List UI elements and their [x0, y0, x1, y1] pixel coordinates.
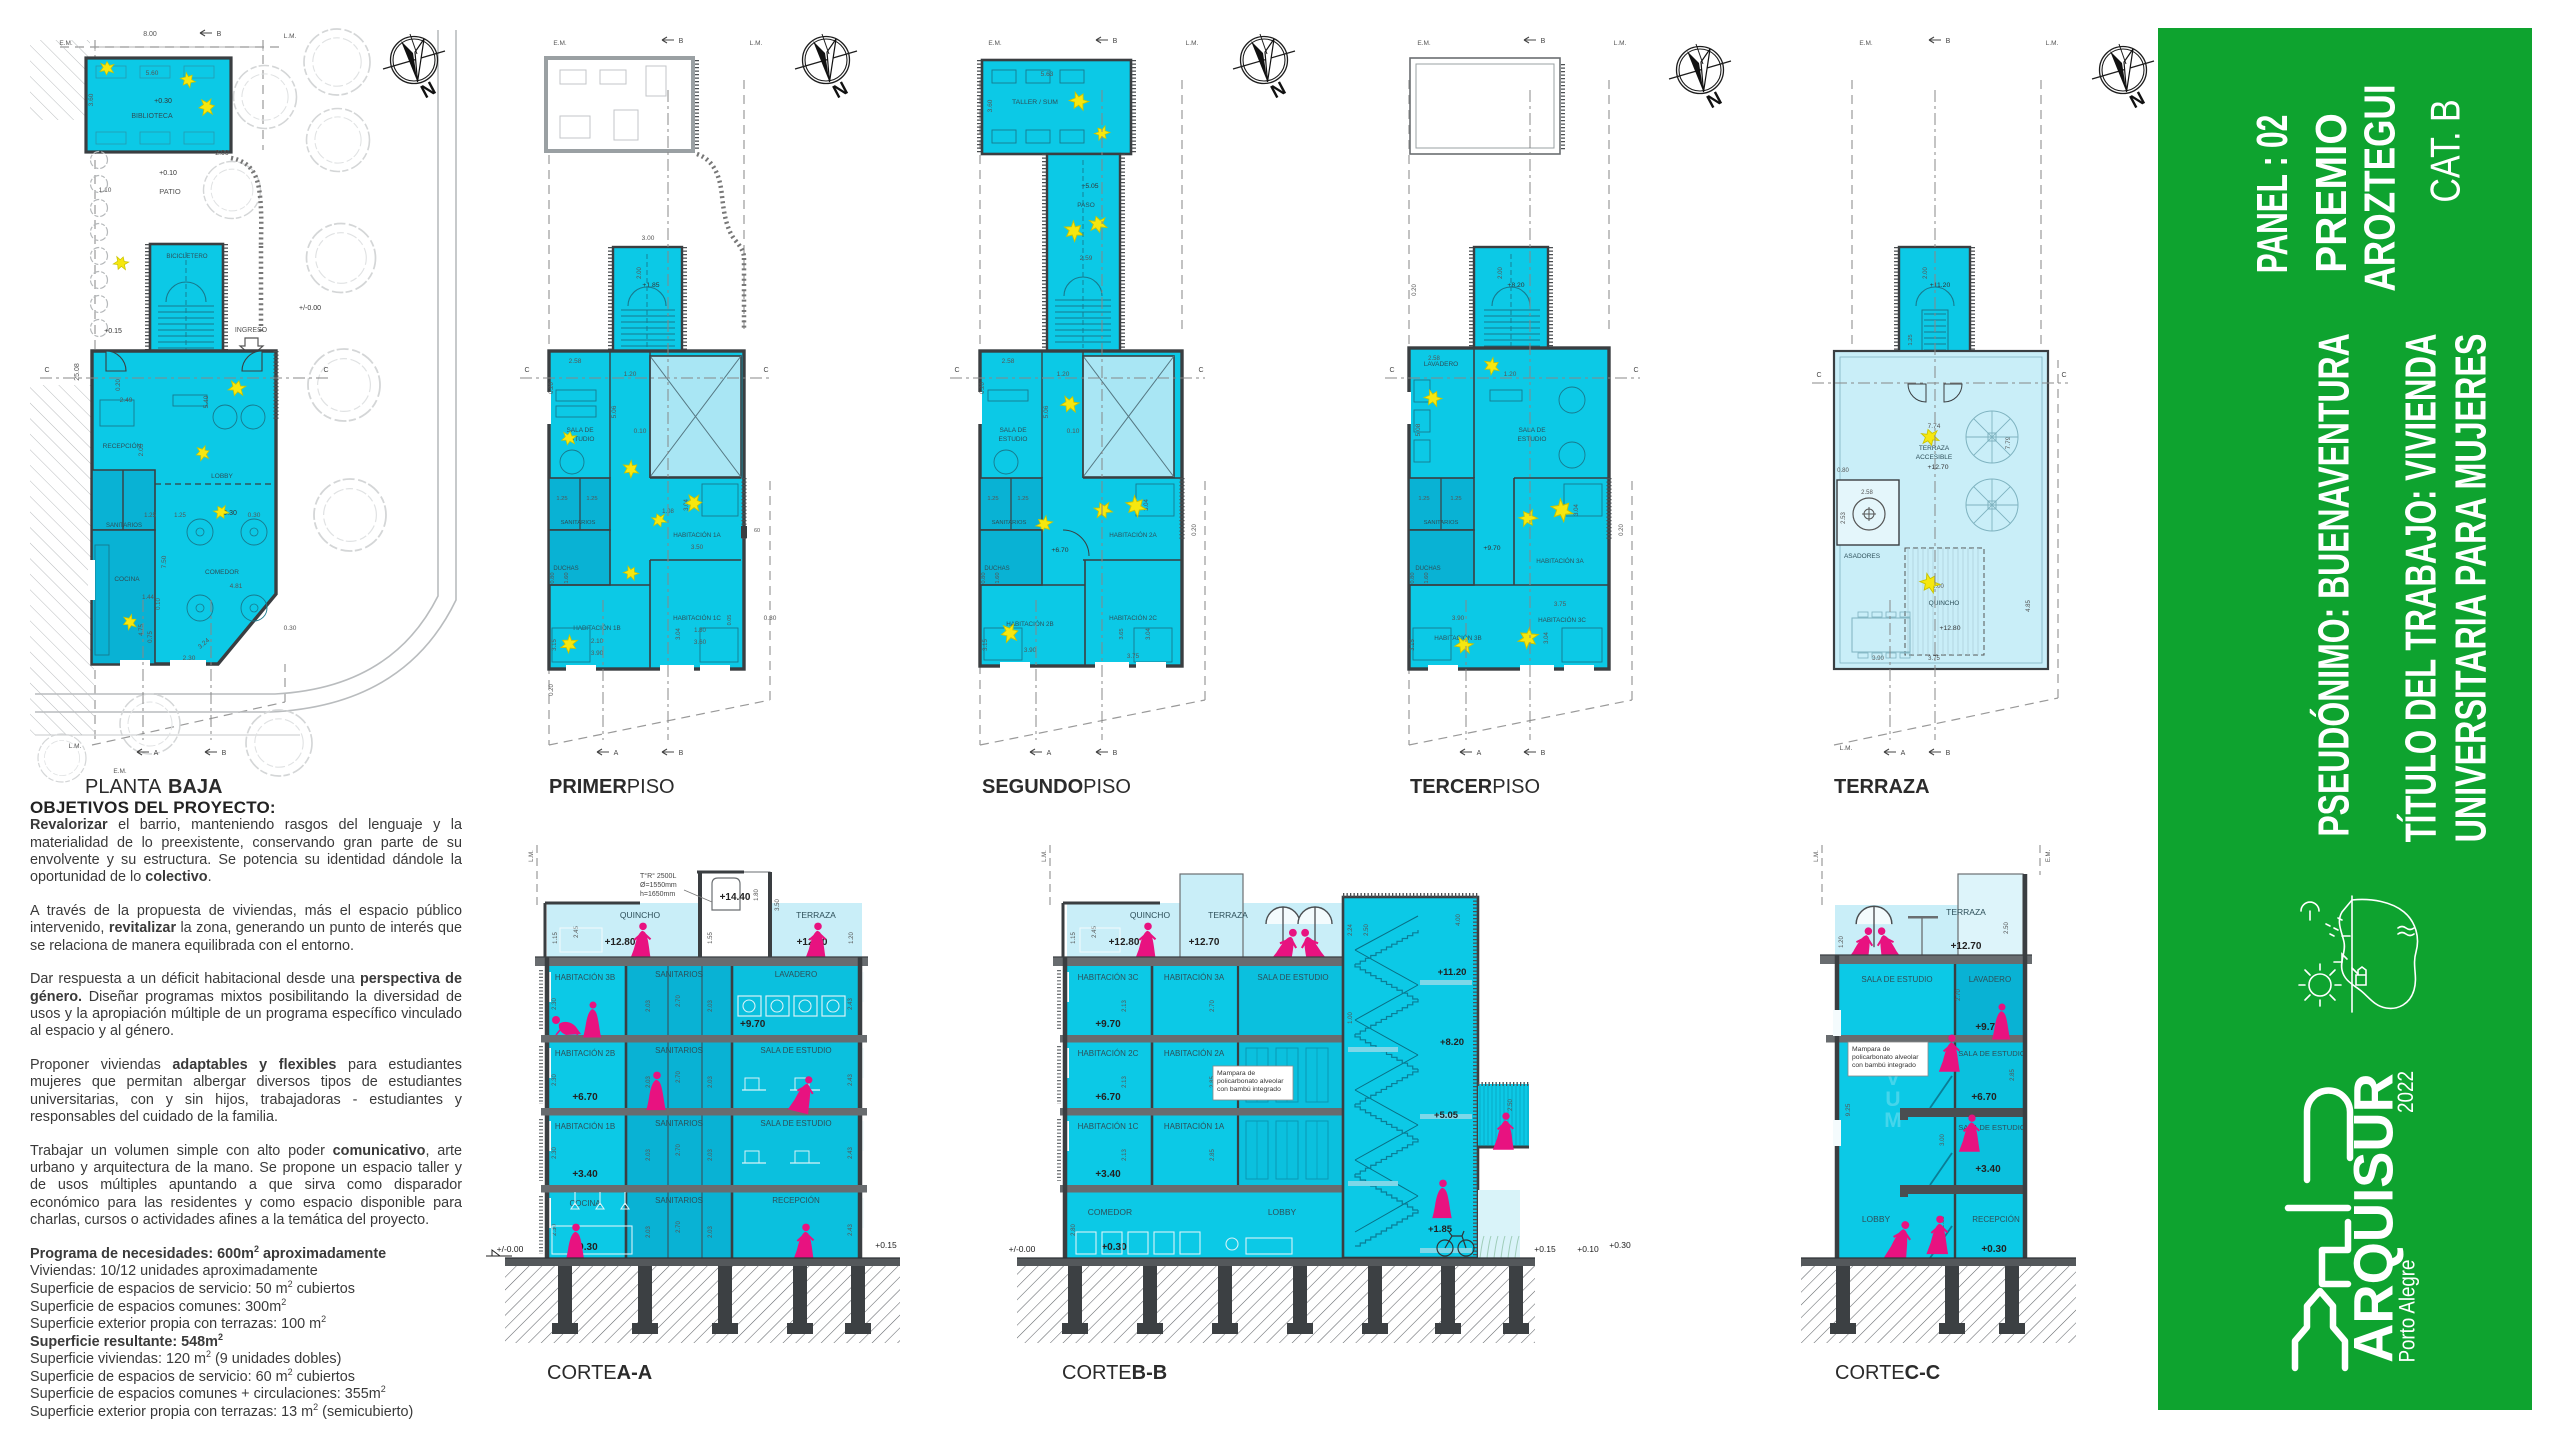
svg-text:+/-0.00: +/-0.00 [299, 305, 321, 312]
svg-text:A: A [1901, 750, 1906, 757]
svg-text:+3.40: +3.40 [1095, 1169, 1121, 1180]
svg-text:+12.70: +12.70 [1189, 937, 1220, 948]
svg-text:3.15: 3.15 [1410, 639, 1416, 651]
svg-text:2.03: 2.03 [708, 1226, 714, 1238]
svg-text:2022: 2022 [2394, 1071, 2419, 1113]
svg-text:A: A [614, 750, 619, 757]
svg-text:C: C [954, 367, 959, 374]
svg-text:TÍTULO DEL TRABAJO: VIVIENDA: TÍTULO DEL TRABAJO: VIVIENDA [2395, 334, 2446, 843]
svg-text:HABITACIÓN 1B: HABITACIÓN 1B [573, 623, 620, 632]
svg-text:4.00: 4.00 [1456, 914, 1462, 926]
svg-text:T°R° 2500L: T°R° 2500L [640, 872, 676, 880]
svg-text:B: B [1113, 38, 1118, 45]
svg-text:60: 60 [754, 528, 760, 534]
svg-text:+12.80: +12.80 [605, 937, 636, 948]
svg-text:h=1650mm: h=1650mm [640, 891, 675, 898]
svg-text:2.43: 2.43 [848, 998, 854, 1010]
svg-text:2.70: 2.70 [676, 995, 682, 1007]
svg-text:2.70: 2.70 [676, 1221, 682, 1233]
svg-text:1.25: 1.25 [556, 496, 567, 502]
svg-text:0.80: 0.80 [550, 572, 556, 583]
svg-text:SANITARIOS: SANITARIOS [561, 520, 596, 526]
svg-text:3.60: 3.60 [88, 93, 95, 106]
svg-text:C: C [1633, 367, 1638, 374]
svg-text:0.20: 0.20 [1412, 284, 1418, 296]
svg-text:HABITACIÓN 2A: HABITACIÓN 2A [1109, 530, 1157, 539]
svg-text:1.44: 1.44 [142, 595, 154, 601]
svg-text:3.15: 3.15 [552, 639, 558, 651]
svg-text:C: C [323, 367, 328, 374]
svg-text:C: C [763, 367, 768, 374]
svg-text:QUINCHO: QUINCHO [1929, 600, 1960, 607]
svg-text:2.03: 2.03 [646, 1000, 652, 1012]
svg-text:0.05: 0.05 [727, 615, 733, 626]
svg-text:1.20: 1.20 [849, 932, 855, 944]
svg-text:+0.10: +0.10 [1577, 1244, 1599, 1254]
svg-text:+0.15: +0.15 [1534, 1244, 1556, 1254]
svg-text:4.81: 4.81 [230, 583, 243, 590]
svg-text:3.75: 3.75 [1127, 653, 1140, 660]
svg-text:TERRAZA: TERRAZA [1946, 907, 1986, 917]
svg-text:+3.40: +3.40 [572, 1169, 598, 1180]
svg-text:con bambú integrado: con bambú integrado [1217, 1086, 1281, 1093]
svg-text:+9.70: +9.70 [1483, 545, 1500, 552]
svg-text:3.75: 3.75 [1554, 601, 1567, 608]
svg-text:L.M.: L.M. [529, 850, 535, 862]
svg-text:QUINCHO: QUINCHO [620, 910, 661, 920]
svg-text:2.00: 2.00 [215, 150, 229, 157]
svg-text:1.25: 1.25 [1908, 334, 1914, 345]
svg-text:L.M.: L.M. [1814, 850, 1820, 862]
svg-text:SALA DE ESTUDIO: SALA DE ESTUDIO [1861, 975, 1932, 984]
svg-text:2.24: 2.24 [1348, 924, 1354, 936]
svg-text:3.04: 3.04 [1146, 628, 1152, 640]
svg-text:2.58: 2.58 [569, 358, 582, 365]
svg-text:1.55: 1.55 [708, 932, 714, 944]
svg-text:2.43: 2.43 [848, 1074, 854, 1086]
svg-text:BICICLETERO: BICICLETERO [166, 253, 207, 260]
svg-text:policarbonato alveolar: policarbonato alveolar [1217, 1078, 1284, 1085]
svg-text:COCINA: COCINA [114, 576, 140, 583]
svg-text:1.25: 1.25 [144, 513, 156, 519]
svg-text:+0.15: +0.15 [104, 328, 122, 335]
svg-text:+0.30: +0.30 [1101, 1242, 1127, 1253]
svg-text:+6.70: +6.70 [1051, 547, 1068, 554]
svg-text:0.20: 0.20 [549, 684, 555, 696]
svg-text:2.10: 2.10 [591, 638, 604, 645]
svg-text:Ø=1550mm: Ø=1550mm [640, 882, 677, 889]
svg-text:2.70: 2.70 [1210, 1000, 1216, 1012]
svg-text:0.20: 0.20 [549, 382, 555, 394]
svg-text:HABITACIÓN 3A: HABITACIÓN 3A [1536, 556, 1584, 565]
svg-text:2.03: 2.03 [646, 1226, 652, 1238]
svg-text:+0.15: +0.15 [875, 1240, 897, 1250]
svg-text:0.80: 0.80 [1837, 468, 1849, 474]
svg-text:B: B [679, 38, 684, 45]
svg-text:1.25: 1.25 [1418, 496, 1429, 502]
svg-text:3.00: 3.00 [642, 235, 655, 242]
svg-text:ESTUDIO: ESTUDIO [999, 436, 1028, 443]
svg-text:4.75: 4.75 [139, 624, 145, 636]
svg-text:2.53: 2.53 [1841, 512, 1847, 524]
svg-text:3.90: 3.90 [591, 650, 604, 657]
svg-text:B: B [1541, 750, 1546, 757]
svg-text:E.M.: E.M. [113, 768, 127, 775]
svg-text:con bambú integrado: con bambú integrado [1852, 1062, 1916, 1069]
svg-text:E.M.: E.M. [59, 40, 73, 47]
svg-text:DUCHAS: DUCHAS [984, 566, 1009, 572]
svg-text:2.49: 2.49 [120, 397, 133, 404]
svg-text:HABITACIÓN 1C: HABITACIÓN 1C [1078, 1122, 1139, 1131]
svg-text:U: U [1885, 1088, 1900, 1111]
svg-text:TERRAZA: TERRAZA [1919, 445, 1950, 452]
svg-text:L.M.: L.M. [2046, 40, 2059, 47]
svg-text:Mampara de: Mampara de [1217, 1070, 1255, 1077]
svg-text:2.03: 2.03 [708, 1149, 714, 1161]
svg-text:HABITACIÓN 2A: HABITACIÓN 2A [1164, 1049, 1225, 1058]
svg-text:0.10: 0.10 [1067, 428, 1080, 435]
svg-text:5.40: 5.40 [203, 395, 210, 408]
svg-text:+3.40: +3.40 [1975, 1164, 2001, 1175]
svg-text:SALA DE: SALA DE [1518, 427, 1546, 434]
svg-text:B: B [679, 750, 684, 757]
svg-text:C: C [1389, 367, 1394, 374]
svg-text:+14.40: +14.40 [720, 892, 751, 903]
svg-text:+11.20: +11.20 [1438, 967, 1467, 978]
svg-text:E.M.: E.M. [1859, 40, 1873, 47]
svg-text:2.59: 2.59 [1080, 255, 1093, 262]
svg-text:3.50: 3.50 [775, 899, 781, 911]
svg-text:+6.70: +6.70 [1095, 1092, 1121, 1103]
svg-text:TERCERPISO: TERCERPISO [1410, 776, 1540, 798]
svg-text:BIBLIOTECA: BIBLIOTECA [131, 113, 173, 120]
svg-text:CORTEB-B: CORTEB-B [1062, 1362, 1167, 1384]
svg-text:SALA DE: SALA DE [999, 427, 1027, 434]
svg-text:+1.85: +1.85 [1428, 1224, 1453, 1235]
svg-text:CORTEA-A: CORTEA-A [547, 1362, 652, 1384]
svg-text:1.15: 1.15 [553, 932, 559, 944]
svg-text:0.75: 0.75 [148, 631, 154, 643]
svg-text:2.30: 2.30 [552, 1074, 558, 1086]
svg-text:2.00: 2.00 [1498, 267, 1504, 279]
svg-text:1.20: 1.20 [624, 371, 637, 378]
svg-text:SANITARIOS: SANITARIOS [655, 1046, 703, 1055]
svg-text:LAVADERO: LAVADERO [1424, 361, 1458, 368]
svg-text:+8.20: +8.20 [1440, 1037, 1464, 1048]
svg-text:1.60: 1.60 [1424, 572, 1430, 583]
svg-text:2.70: 2.70 [1956, 989, 1962, 1001]
svg-text:ARQUISUR: ARQUISUR [2342, 1073, 2405, 1363]
svg-text:3.75: 3.75 [1928, 656, 1940, 662]
svg-text:3.04: 3.04 [1574, 504, 1580, 516]
svg-text:+5.05: +5.05 [1434, 1110, 1459, 1121]
svg-text:L.M.: L.M. [284, 33, 297, 40]
svg-text:M: M [1884, 1109, 1902, 1132]
svg-text:HABITACIÓN 1C: HABITACIÓN 1C [673, 613, 721, 622]
svg-text:2.03: 2.03 [138, 443, 145, 456]
svg-text:C: C [1198, 367, 1203, 374]
svg-text:B: B [1541, 38, 1546, 45]
svg-text:SANITARIOS: SANITARIOS [655, 1119, 703, 1128]
svg-text:1.60: 1.60 [564, 572, 570, 583]
svg-text:HABITACIÓN 3A: HABITACIÓN 3A [1164, 973, 1225, 982]
svg-text:Mampara de: Mampara de [1852, 1046, 1890, 1053]
svg-text:E.M.: E.M. [988, 40, 1002, 47]
svg-text:ESTUDIO: ESTUDIO [1518, 436, 1547, 443]
svg-text:B: B [1113, 750, 1118, 757]
svg-text:2.13: 2.13 [1122, 1149, 1128, 1161]
svg-text:INGRESO: INGRESO [235, 327, 268, 334]
svg-text:2.50: 2.50 [1364, 924, 1370, 936]
svg-text:4.85: 4.85 [2026, 600, 2032, 612]
svg-text:+6.70: +6.70 [1971, 1092, 1997, 1103]
svg-text:2.00: 2.00 [637, 267, 643, 279]
svg-text:Porto Alegre: Porto Alegre [2396, 1260, 2420, 1363]
svg-text:BAJA: BAJA [168, 776, 222, 798]
svg-text:LAVADERO: LAVADERO [775, 970, 817, 979]
svg-text:+12.70: +12.70 [1928, 464, 1949, 471]
svg-text:1.25: 1.25 [1450, 496, 1461, 502]
svg-text:+0.30: +0.30 [1981, 1244, 2007, 1255]
svg-text:0.30: 0.30 [248, 512, 261, 519]
svg-text:+/-0.00: +/-0.00 [1009, 1244, 1036, 1254]
svg-text:1.25: 1.25 [1017, 496, 1028, 502]
svg-text:HABITACIÓN 3C: HABITACIÓN 3C [1538, 615, 1586, 624]
svg-text:2.03: 2.03 [708, 1076, 714, 1088]
svg-text:+9.70: +9.70 [740, 1019, 766, 1030]
svg-text:ASADORES: ASADORES [1844, 553, 1881, 560]
svg-text:+12.80: +12.80 [1940, 625, 1961, 632]
svg-text:2.30: 2.30 [552, 998, 558, 1010]
svg-text:2.45: 2.45 [1092, 926, 1098, 938]
svg-text:LOBBY: LOBBY [1862, 1214, 1891, 1224]
svg-text:+5.05: +5.05 [1081, 183, 1098, 190]
svg-text:L.M.: L.M. [750, 40, 763, 47]
svg-text:2.43: 2.43 [848, 1147, 854, 1159]
svg-text:COMEDOR: COMEDOR [1088, 1207, 1132, 1217]
svg-text:0.20: 0.20 [1619, 524, 1625, 536]
svg-text:2.50: 2.50 [1508, 1099, 1514, 1111]
svg-text:1.10: 1.10 [99, 187, 112, 194]
svg-text:TERRAZA: TERRAZA [796, 910, 836, 920]
svg-text:2.85: 2.85 [2010, 1069, 2016, 1081]
svg-text:7.74: 7.74 [1928, 423, 1941, 430]
svg-text:HABITACIÓN 3C: HABITACIÓN 3C [1078, 973, 1139, 982]
svg-text:2.43: 2.43 [848, 1224, 854, 1236]
svg-text:5.06: 5.06 [611, 405, 618, 418]
svg-text:2.58: 2.58 [1428, 356, 1440, 362]
svg-text:2.58: 2.58 [1002, 358, 1015, 365]
svg-text:2.70: 2.70 [676, 1071, 682, 1083]
svg-text:+9.70: +9.70 [1095, 1019, 1121, 1030]
svg-text:LOBBY: LOBBY [1268, 1207, 1297, 1217]
svg-text:3.04: 3.04 [676, 628, 682, 640]
svg-text:3.00: 3.00 [1940, 1134, 1946, 1146]
svg-text:3.65: 3.65 [1119, 628, 1125, 639]
svg-text:+0.10: +0.10 [159, 170, 177, 177]
svg-text:0.80: 0.80 [1410, 572, 1416, 583]
svg-text:C: C [44, 367, 49, 374]
svg-text:0.20: 0.20 [980, 382, 986, 394]
svg-text:RECEPCIÓN: RECEPCIÓN [103, 441, 142, 450]
svg-text:HABITACIÓN 3B: HABITACIÓN 3B [555, 973, 615, 982]
svg-text:SANITARIOS: SANITARIOS [655, 970, 703, 979]
svg-text:2.85: 2.85 [1210, 1149, 1216, 1161]
svg-text:PRIMERPISO: PRIMERPISO [549, 776, 675, 798]
svg-text:QUINCHO: QUINCHO [1130, 910, 1171, 920]
svg-text:1.20: 1.20 [1839, 936, 1845, 948]
svg-text:2.45: 2.45 [574, 926, 580, 938]
svg-text:HABITACIÓN 2B: HABITACIÓN 2B [555, 1049, 615, 1058]
svg-text:HABITACIÓN 1B: HABITACIÓN 1B [555, 1122, 615, 1131]
svg-text:0.10: 0.10 [156, 598, 162, 610]
svg-text:PLANTA: PLANTA [85, 776, 162, 798]
svg-text:RECEPCIÓN: RECEPCIÓN [1972, 1215, 2020, 1224]
svg-text:TERRAZA: TERRAZA [1834, 776, 1930, 798]
svg-text:PATIO: PATIO [159, 187, 181, 196]
svg-text:1.20: 1.20 [1504, 371, 1517, 378]
svg-text:2.00: 2.00 [1923, 267, 1929, 279]
svg-text:E.M.: E.M. [553, 40, 567, 47]
svg-text:C: C [2061, 372, 2066, 379]
svg-text:SANITARIOS: SANITARIOS [655, 1196, 703, 1205]
svg-text:COMEDOR: COMEDOR [205, 569, 239, 576]
svg-text:1.15: 1.15 [1071, 932, 1077, 944]
svg-text:SANITARIOS: SANITARIOS [106, 523, 142, 529]
svg-text:SALA DE ESTUDIO: SALA DE ESTUDIO [760, 1046, 831, 1055]
svg-text:1.25: 1.25 [586, 496, 597, 502]
svg-text:SEGUNDOPISO: SEGUNDOPISO [982, 776, 1131, 798]
svg-text:8.00: 8.00 [143, 31, 157, 38]
svg-text:0.30: 0.30 [284, 625, 297, 632]
svg-text:3.60: 3.60 [987, 99, 994, 112]
svg-text:A: A [1477, 750, 1482, 757]
svg-text:L.M.: L.M. [1186, 40, 1199, 47]
svg-text:+0.30: +0.30 [1609, 1240, 1631, 1250]
svg-text:policarbonato alveolar: policarbonato alveolar [1852, 1054, 1919, 1061]
svg-text:0.10: 0.10 [634, 428, 647, 435]
svg-text:2.03: 2.03 [646, 1149, 652, 1161]
svg-text:0.20: 0.20 [1192, 524, 1198, 536]
svg-text:+12.70: +12.70 [1951, 941, 1982, 952]
svg-text:E.M.: E.M. [2046, 850, 2052, 863]
svg-text:HABITACIÓN 2C: HABITACIÓN 2C [1109, 613, 1157, 622]
svg-text:B: B [217, 31, 222, 38]
svg-text:E.M.: E.M. [1417, 40, 1431, 47]
svg-text:AROZTEGUI: AROZTEGUI [2356, 84, 2405, 291]
svg-text:5.08: 5.08 [1415, 423, 1422, 436]
svg-text:L.M.: L.M. [69, 743, 82, 750]
svg-text:7.50: 7.50 [161, 555, 168, 568]
svg-text:2.58: 2.58 [1861, 490, 1873, 496]
svg-text:3.90: 3.90 [1452, 615, 1465, 622]
svg-text:2.30: 2.30 [183, 655, 196, 662]
svg-text:L.M.: L.M. [1042, 850, 1048, 862]
svg-text:0.80: 0.80 [981, 572, 987, 583]
svg-text:2.50: 2.50 [2004, 922, 2010, 934]
svg-text:A: A [154, 750, 159, 757]
svg-text:9.25: 9.25 [1845, 1103, 1852, 1116]
svg-text:C: C [1816, 372, 1821, 379]
svg-text:SANITARIOS: SANITARIOS [1424, 520, 1459, 526]
svg-text:1.80: 1.80 [754, 889, 760, 901]
svg-text:L.M.: L.M. [1614, 40, 1627, 47]
svg-text:5.63: 5.63 [1041, 71, 1054, 78]
svg-text:SALA DE ESTUDIO: SALA DE ESTUDIO [760, 1119, 831, 1128]
svg-text:PANEL : 02: PANEL : 02 [2247, 115, 2296, 273]
svg-text:ACCESIBLE: ACCESIBLE [1916, 454, 1953, 461]
svg-text:2.30: 2.30 [552, 1224, 558, 1236]
svg-text:HABITACIÓN 1A: HABITACIÓN 1A [1164, 1122, 1225, 1131]
svg-text:LAVADERO: LAVADERO [1969, 975, 2011, 984]
svg-text:B: B [1946, 38, 1951, 45]
svg-text:DUCHAS: DUCHAS [1415, 566, 1440, 572]
svg-text:+12.80: +12.80 [1109, 937, 1140, 948]
svg-text:3.50: 3.50 [691, 544, 704, 551]
svg-text:HABITACIÓN 3B: HABITACIÓN 3B [1434, 633, 1481, 642]
svg-text:CORTEC-C: CORTEC-C [1835, 1362, 1940, 1384]
svg-text:3.60: 3.60 [694, 639, 707, 646]
svg-text:PREMIO: PREMIO [2307, 113, 2356, 273]
svg-text:3.90: 3.90 [1872, 656, 1884, 662]
svg-text:1.80: 1.80 [694, 628, 706, 634]
svg-text:TALLER / SUM: TALLER / SUM [1012, 99, 1058, 106]
svg-text:SALA DE ESTUDIO: SALA DE ESTUDIO [1958, 1049, 2026, 1058]
svg-text:+6.70: +6.70 [572, 1092, 598, 1103]
svg-text:1.00: 1.00 [1348, 1012, 1354, 1024]
svg-text:1.25: 1.25 [987, 496, 998, 502]
svg-text:HABITACIÓN 2C: HABITACIÓN 2C [1078, 1049, 1139, 1058]
svg-text:A: A [1047, 750, 1052, 757]
svg-text:3.90: 3.90 [1024, 647, 1037, 654]
svg-text:1.25: 1.25 [174, 513, 186, 519]
svg-text:7.79: 7.79 [2005, 436, 2012, 449]
svg-text:HABITACIÓN 1A: HABITACIÓN 1A [673, 530, 721, 539]
svg-text:PSEUDÓNIMO: BUENAVENTURA: PSEUDÓNIMO: BUENAVENTURA [2308, 333, 2358, 836]
svg-text:2.70: 2.70 [676, 1144, 682, 1156]
svg-text:+0.30: +0.30 [154, 98, 172, 105]
svg-text:SANITARIOS: SANITARIOS [992, 520, 1027, 526]
svg-text:5.60: 5.60 [146, 70, 159, 77]
svg-text:+/-0.00: +/-0.00 [497, 1244, 524, 1254]
svg-text:DUCHAS: DUCHAS [553, 566, 578, 572]
svg-text:0.30: 0.30 [764, 615, 777, 622]
svg-text:B: B [1946, 750, 1951, 757]
svg-text:1.60: 1.60 [995, 572, 1001, 583]
svg-text:2.30: 2.30 [552, 1147, 558, 1159]
svg-text:PASO: PASO [1077, 202, 1095, 209]
svg-text:3.04: 3.04 [1544, 632, 1550, 644]
svg-text:2.03: 2.03 [646, 1076, 652, 1088]
svg-text:UNIVERSITARIA PARA MUJERES: UNIVERSITARIA PARA MUJERES [2446, 334, 2495, 843]
svg-text:3.15: 3.15 [983, 639, 989, 651]
svg-text:RECEPCIÓN: RECEPCIÓN [772, 1196, 820, 1205]
svg-text:LOBBY: LOBBY [211, 473, 233, 480]
svg-text:2.03: 2.03 [708, 1000, 714, 1012]
svg-text:2.13: 2.13 [1122, 1076, 1128, 1088]
svg-text:2.13: 2.13 [1122, 1000, 1128, 1012]
svg-text:B: B [222, 750, 227, 757]
svg-text:SALA DE ESTUDIO: SALA DE ESTUDIO [1257, 973, 1328, 982]
svg-text:5.06: 5.06 [1043, 405, 1050, 418]
svg-text:TERRAZA: TERRAZA [1208, 910, 1248, 920]
svg-text:CAT. B: CAT. B [2422, 99, 2469, 202]
svg-text:1.20: 1.20 [1057, 371, 1070, 378]
svg-text:L.M.: L.M. [1840, 745, 1853, 752]
svg-text:C: C [524, 367, 529, 374]
svg-text:0.20: 0.20 [116, 379, 122, 391]
